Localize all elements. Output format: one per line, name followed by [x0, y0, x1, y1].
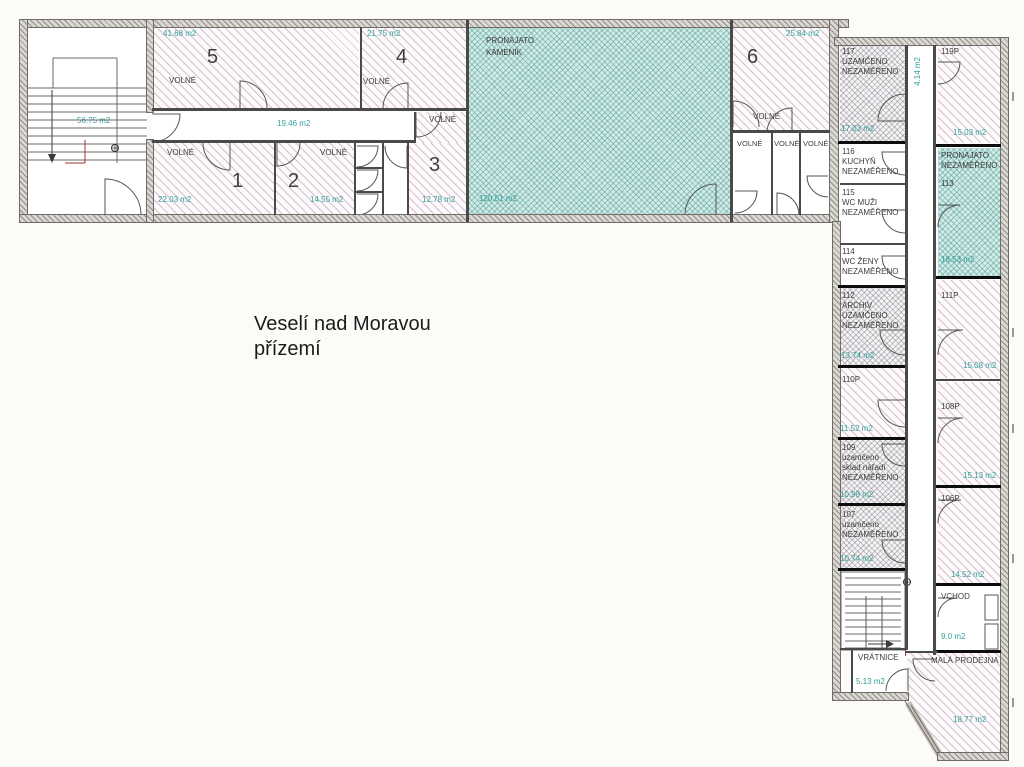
room1-status: VOLNÉ [167, 149, 194, 157]
wall-west-top [20, 20, 848, 27]
wall-corridor-bottom [152, 140, 415, 143]
wall-prodejna-bottom [938, 753, 1008, 760]
room-113: PRONAJATO NEZAMĚŘENO 113 18.53 m2 [938, 148, 1001, 276]
wall-116-115 [840, 183, 905, 185]
room3-status: VOLNÉ [429, 116, 456, 124]
wall-111p-bottom [936, 379, 1001, 381]
wall-west-left [20, 20, 27, 222]
room3-number: 3 [429, 155, 440, 175]
room112-number: 112 [842, 292, 855, 300]
wall-vchod-bottom [936, 650, 1001, 653]
room-107: 107 uzamčeno NEZAMĚŘENO 10.74 m2 [840, 506, 905, 568]
room108p-number: 108P [941, 403, 960, 411]
plan-title-line1: Veselí nad Moravou [254, 312, 431, 337]
room115-line1: WC MUŽI [842, 199, 877, 207]
small-room-b: VOLNÉ [773, 133, 799, 215]
room117-number: 117 [842, 48, 855, 56]
plan-title-line2: přízemí [254, 337, 431, 362]
prodejna-name: MALÁ PRODEJNA [931, 657, 999, 665]
wall-corridor-r3 [414, 112, 416, 143]
room111p-number: 111P [941, 292, 959, 300]
room5-status: VOLNÉ [169, 77, 196, 85]
wall-prodejna-top-left [906, 651, 938, 653]
wc-stalls [356, 143, 382, 215]
room114-number: 114 [842, 248, 855, 256]
room2-number: 2 [288, 171, 299, 191]
room106p-number: 106P [941, 495, 960, 503]
room-106p: 106P 14.52 m2 [938, 488, 1001, 583]
room-4: 21.75 m2 4 VOLNÉ [362, 27, 466, 108]
small-room-a-status: VOLNÉ [737, 140, 762, 148]
room107-area-label: 10.74 m2 [840, 555, 873, 563]
room112-area-label: 13.74 m2 [841, 352, 874, 360]
plan-title: Veselí nad Moravou přízemí [254, 312, 431, 362]
wall-west-bottom [20, 215, 838, 222]
room109-line2: sklad nářadí [842, 464, 886, 472]
room-117: 117 UZAMČENO NEZAMĚŘENO 17.03 m2 [840, 45, 905, 141]
room-115: 115 WC MUŽI NEZAMĚŘENO [840, 185, 905, 243]
room-stairwell: 56.75 m2 [27, 27, 147, 215]
wall-113-bottom [936, 276, 1001, 279]
room-110p: 110P 11.52 m2 [840, 368, 905, 437]
room3-area-label: 12.78 m2 [422, 196, 455, 204]
room1-number: 1 [232, 171, 243, 191]
room110p-area-label: 11.52 m2 [840, 425, 873, 433]
room6-area-label: 25.84 m2 [786, 30, 819, 38]
room109-number: 109 [842, 444, 855, 452]
wall-112-bottom [838, 365, 905, 368]
room-kamenik: PRONAJATO KAMENÍK 120.51 m2 [469, 27, 730, 215]
wall-east-top [835, 38, 1008, 45]
room4-number: 4 [396, 47, 407, 67]
vchod-area-label: 9.0 m2 [941, 633, 965, 641]
room5-area-label: 41.68 m2 [163, 30, 196, 38]
wall-wing-junction [830, 20, 838, 222]
room4-status: VOLNÉ [363, 78, 390, 86]
room117-area-label: 17.03 m2 [841, 125, 874, 133]
small-room-c-status: VOLNÉ [803, 140, 828, 148]
wall-109-top [838, 437, 905, 440]
wc-corridor [384, 143, 407, 215]
vchod-name: VCHOD [941, 593, 970, 601]
room112-line3: NEZAMĚŘENO [842, 322, 898, 330]
wall-east-right [1001, 38, 1008, 760]
room-1: VOLNÉ 1 22.03 m2 [152, 143, 274, 215]
room-vratnice: VRÁTNICE 5.13 m2 [853, 650, 905, 693]
room-108p: 108P 15.13 m2 [938, 382, 1001, 485]
room107-line1: uzamčeno [842, 521, 879, 529]
kamenik-tenant-line2: KAMENÍK [486, 49, 522, 57]
wall-stairwell-right-lower [147, 140, 153, 222]
room107-line2: NEZAMĚŘENO [842, 531, 898, 539]
room2-area-label: 14.55 m2 [310, 196, 343, 204]
small-room-a: VOLNÉ [733, 133, 771, 215]
room106p-area-label: 14.52 m2 [951, 571, 984, 579]
wall-stalls-wc [382, 143, 384, 215]
wall-r2-stalls [354, 143, 356, 215]
room111p-area-label: 15.08 m2 [963, 362, 996, 370]
wall-106p-bottom [936, 583, 1001, 586]
room115-number: 115 [842, 189, 855, 197]
kamenik-area-label: 120.51 m2 [479, 195, 517, 203]
room109-line3: NEZAMĚŘENO [842, 474, 898, 482]
kamenik-tenant-line1: PRONAJATO [486, 37, 534, 45]
wall-108p-bottom [936, 485, 1001, 488]
room-111p: 111P 15.08 m2 [938, 280, 1001, 378]
room6-number: 6 [747, 47, 758, 67]
east-stair-room [840, 571, 906, 650]
room-2: VOLNÉ 2 14.55 m2 [274, 143, 354, 215]
room-3-upper: VOLNÉ [415, 112, 466, 143]
room112-line2: UZAMČENO [842, 312, 888, 320]
wall-east-corridor-left [905, 45, 908, 650]
room-prodejna: MALÁ PRODEJNA 18.77 m2 [908, 653, 1003, 753]
wall-r5-r4 [360, 27, 362, 108]
floor-plan: 56.75 m2 41.68 m2 5 VOLNÉ 21.75 m2 4 VOL… [0, 0, 1024, 767]
room-vchod: VCHOD 9.0 m2 [938, 586, 1001, 650]
wall-r1-r2 [274, 143, 276, 215]
wall-119p-bottom [936, 144, 1001, 147]
room107-number: 107 [842, 511, 855, 519]
wall-kamenik-r6 [730, 20, 733, 222]
room6-status: VOLNÉ [753, 113, 780, 121]
wall-109-bottom [838, 503, 905, 506]
room2-status: VOLNÉ [320, 149, 347, 157]
wall-small-bc [799, 133, 801, 215]
room-5: 41.68 m2 5 VOLNÉ [152, 27, 359, 108]
wall-stairwell-right-upper [147, 20, 153, 112]
room113-area-label: 18.53 m2 [941, 256, 974, 264]
wall-117-bottom [838, 141, 905, 144]
room114-line2: NEZAMĚŘENO [842, 268, 898, 276]
room-109: 109 uzamčeno sklad nářadí NEZAMĚŘENO 10.… [840, 440, 905, 503]
wall-wc-r3 [407, 143, 409, 215]
wall-vratnice-bottom [833, 693, 908, 700]
wall-rooms-corridor [152, 108, 468, 111]
room109-area-label: 10.98 m2 [840, 491, 873, 499]
wall-kamenik-left [466, 20, 469, 222]
room114-line1: WC ŽENY [842, 258, 879, 266]
wall-vratnice-top [840, 648, 905, 650]
vratnice-area-label: 5.13 m2 [856, 678, 885, 686]
east-corridor: 4.14 m2 [908, 45, 933, 650]
room113-line2: NEZAMĚŘENO [941, 162, 997, 170]
room-116: 116 KUCHYŇ NEZAMĚŘENO [840, 145, 905, 183]
wall-east-left [833, 222, 840, 700]
room5-number: 5 [207, 47, 218, 67]
room112-line1: ARCHIV [842, 302, 872, 310]
room116-number: 116 [842, 148, 855, 156]
wall-115-114 [840, 243, 905, 245]
prodejna-area-label: 18.77 m2 [953, 716, 986, 724]
room117-line1: UZAMČENO [842, 58, 888, 66]
small-room-b-status: VOLNÉ [774, 140, 799, 148]
small-room-c: VOLNÉ [801, 133, 830, 215]
room-119p: 119P 15.03 m2 [938, 45, 1001, 143]
room113-line1: PRONAJATO [941, 152, 989, 160]
room119p-area-label: 15.03 m2 [953, 129, 986, 137]
wall-r6-bottom [733, 130, 830, 133]
room115-line2: NEZAMĚŘENO [842, 209, 898, 217]
room1-area-label: 22.03 m2 [158, 196, 191, 204]
west-corridor-area-label: 19.46 m2 [277, 120, 310, 128]
room116-line2: NEZAMĚŘENO [842, 168, 898, 176]
wall-107-bottom [838, 568, 905, 571]
room116-line1: KUCHYŇ [842, 158, 876, 166]
room4-area-label: 21.75 m2 [367, 30, 400, 38]
room109-line1: uzamčeno [842, 454, 879, 462]
wall-small-ab [771, 133, 773, 215]
room113-number: 113 [941, 180, 954, 188]
stairwell-area-label: 56.75 m2 [77, 117, 110, 125]
room-6: 25.84 m2 6 VOLNÉ [733, 27, 830, 130]
room108p-area-label: 15.13 m2 [963, 472, 996, 480]
room117-line2: NEZAMĚŘENO [842, 68, 898, 76]
wall-stall-div2 [356, 191, 382, 193]
room-3: 3 12.78 m2 [409, 143, 466, 215]
vratnice-name: VRÁTNICE [858, 654, 898, 662]
wall-east-corridor-right [933, 45, 936, 655]
room119p-number: 119P [941, 48, 959, 56]
east-corridor-area-label: 4.14 m2 [914, 57, 922, 86]
room-114: 114 WC ŽENY NEZAMĚŘENO [840, 245, 905, 285]
west-corridor: 19.46 m2 [152, 112, 415, 140]
room-112: 112 ARCHIV UZAMČENO NEZAMĚŘENO 13.74 m2 [840, 288, 905, 365]
room110p-number: 110P [842, 376, 860, 384]
dimension-ticks [1012, 92, 1014, 707]
wall-vratnice-left [851, 650, 853, 693]
wall-112-top [838, 285, 905, 288]
wall-stall-div1 [356, 167, 382, 169]
